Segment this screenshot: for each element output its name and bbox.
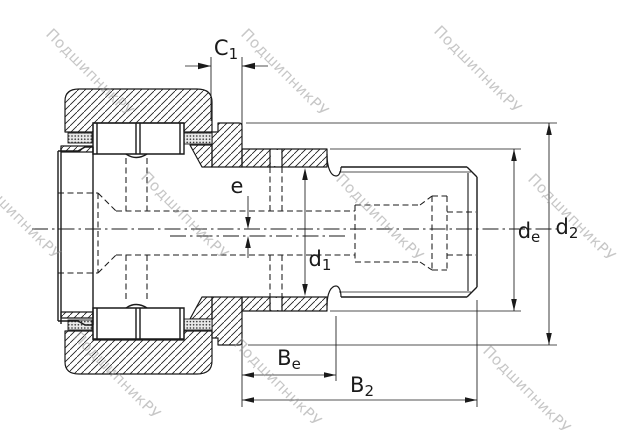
- retainer-washer-right-bottom: [190, 297, 212, 319]
- eccentric-collar-bottom-section: [212, 297, 242, 345]
- centerlines: [32, 229, 558, 236]
- flange-washer-top-section: [242, 149, 327, 167]
- retainer-washer-right-top: [190, 145, 212, 167]
- washer-hole-cutouts: [271, 150, 282, 310]
- seal-left-top: [68, 133, 92, 143]
- dim-label-b2: B2: [350, 375, 374, 399]
- bearing-drawing-page: C1 e d1 de d2 Be B2 ПодшипникРУ Подшипни…: [0, 0, 624, 444]
- seal-right-top: [184, 133, 212, 144]
- hatched-sections: [61, 89, 327, 374]
- eccentric-collar-top-section: [212, 123, 242, 167]
- threaded-stud: [327, 154, 477, 306]
- flange-washer-bottom-section: [242, 297, 327, 311]
- hex-socket-right-hidden-lines: [355, 196, 476, 270]
- outer-ring-bottom-section: [65, 331, 212, 374]
- outer-ring-top-section: [65, 89, 212, 132]
- seal-right-bottom: [184, 319, 212, 330]
- washer-hole-edges: [270, 149, 282, 311]
- lubrication-hole-hidden-lines: [126, 158, 282, 302]
- dim-label-be: Be: [277, 348, 301, 372]
- dimension-arrows: [198, 63, 552, 403]
- dim-label-e: e: [231, 176, 244, 200]
- hidden-lines: [58, 158, 476, 302]
- dim-label-d1: d1: [309, 249, 332, 273]
- retainer-washer-left-bottom: [61, 312, 93, 318]
- dim-label-d2: d2: [556, 217, 579, 241]
- dim-label-de: de: [518, 221, 541, 245]
- dimension-lines: [185, 57, 557, 407]
- needle-rollers: [93, 123, 184, 339]
- seals: [68, 133, 212, 330]
- stud-head: [58, 147, 93, 325]
- dim-label-c1: C1: [214, 38, 238, 62]
